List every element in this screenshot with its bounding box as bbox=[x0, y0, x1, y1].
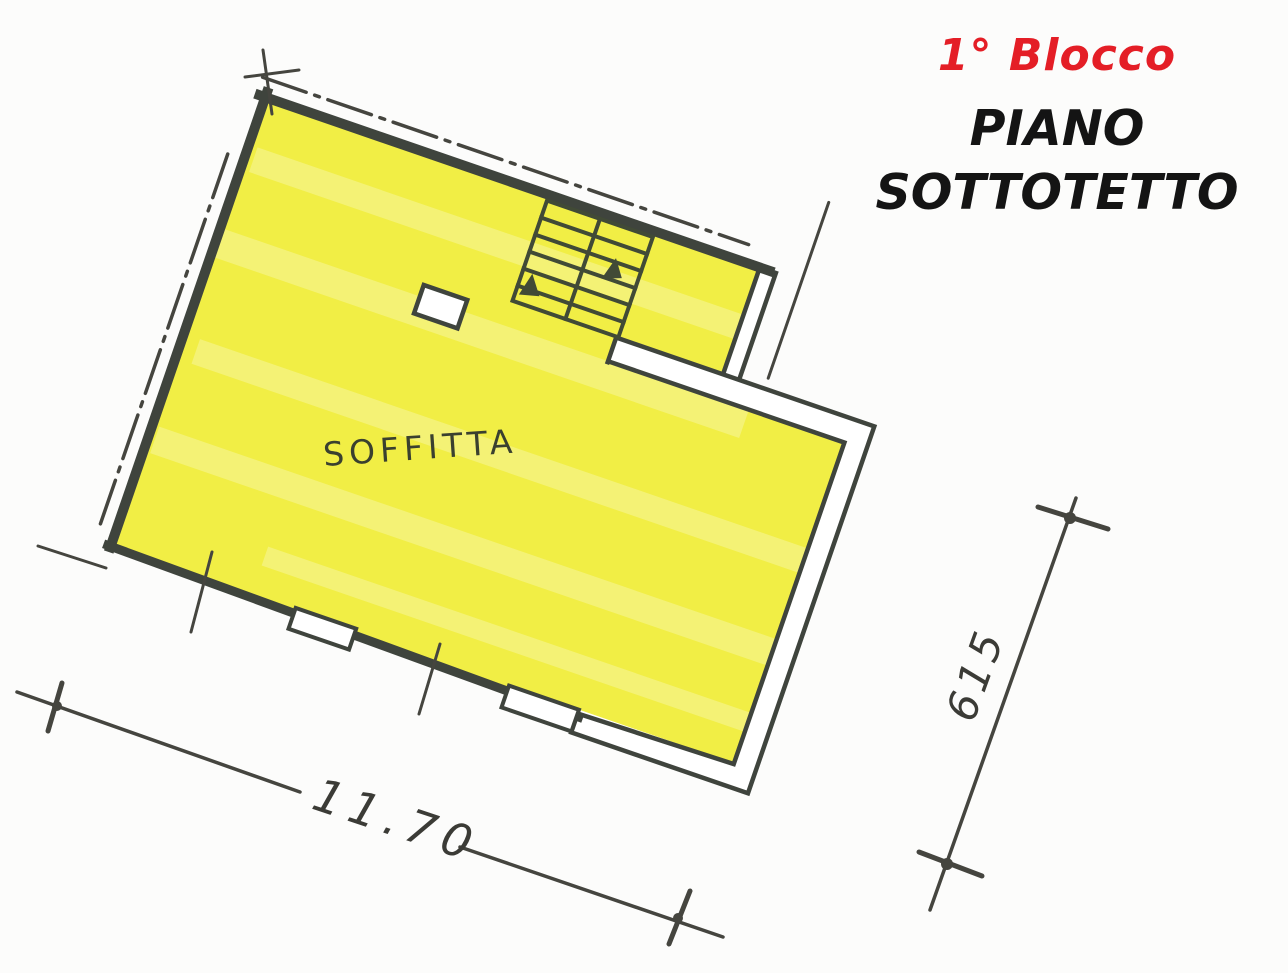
dimension-right-value: 615 bbox=[936, 621, 1015, 727]
block-title: 1° Blocco bbox=[852, 30, 1262, 81]
extension-line-upper-right bbox=[768, 202, 829, 378]
dimension-line bbox=[460, 847, 723, 937]
dimension-tick-blob bbox=[941, 858, 953, 870]
dimension-right: 615 bbox=[919, 498, 1108, 910]
dimension-tick-blob bbox=[1064, 512, 1076, 524]
dimension-tick-blob bbox=[52, 701, 62, 711]
title-block: 1° Blocco PIANO SOTTOTETTO bbox=[852, 30, 1262, 225]
floor-title-line1: PIANO bbox=[852, 97, 1262, 161]
corner-extension-bottomleft bbox=[38, 546, 106, 568]
dimension-bottom-value: 11.70 bbox=[307, 767, 487, 873]
floor-title-line2: SOTTOTETTO bbox=[852, 161, 1262, 225]
building-group bbox=[85, 12, 940, 796]
dimension-tick-blob bbox=[673, 913, 683, 923]
scanned-floor-plan-page: 11.70 615 SOFFITTA 1° Blocco PIANO SOTTO… bbox=[0, 0, 1288, 973]
